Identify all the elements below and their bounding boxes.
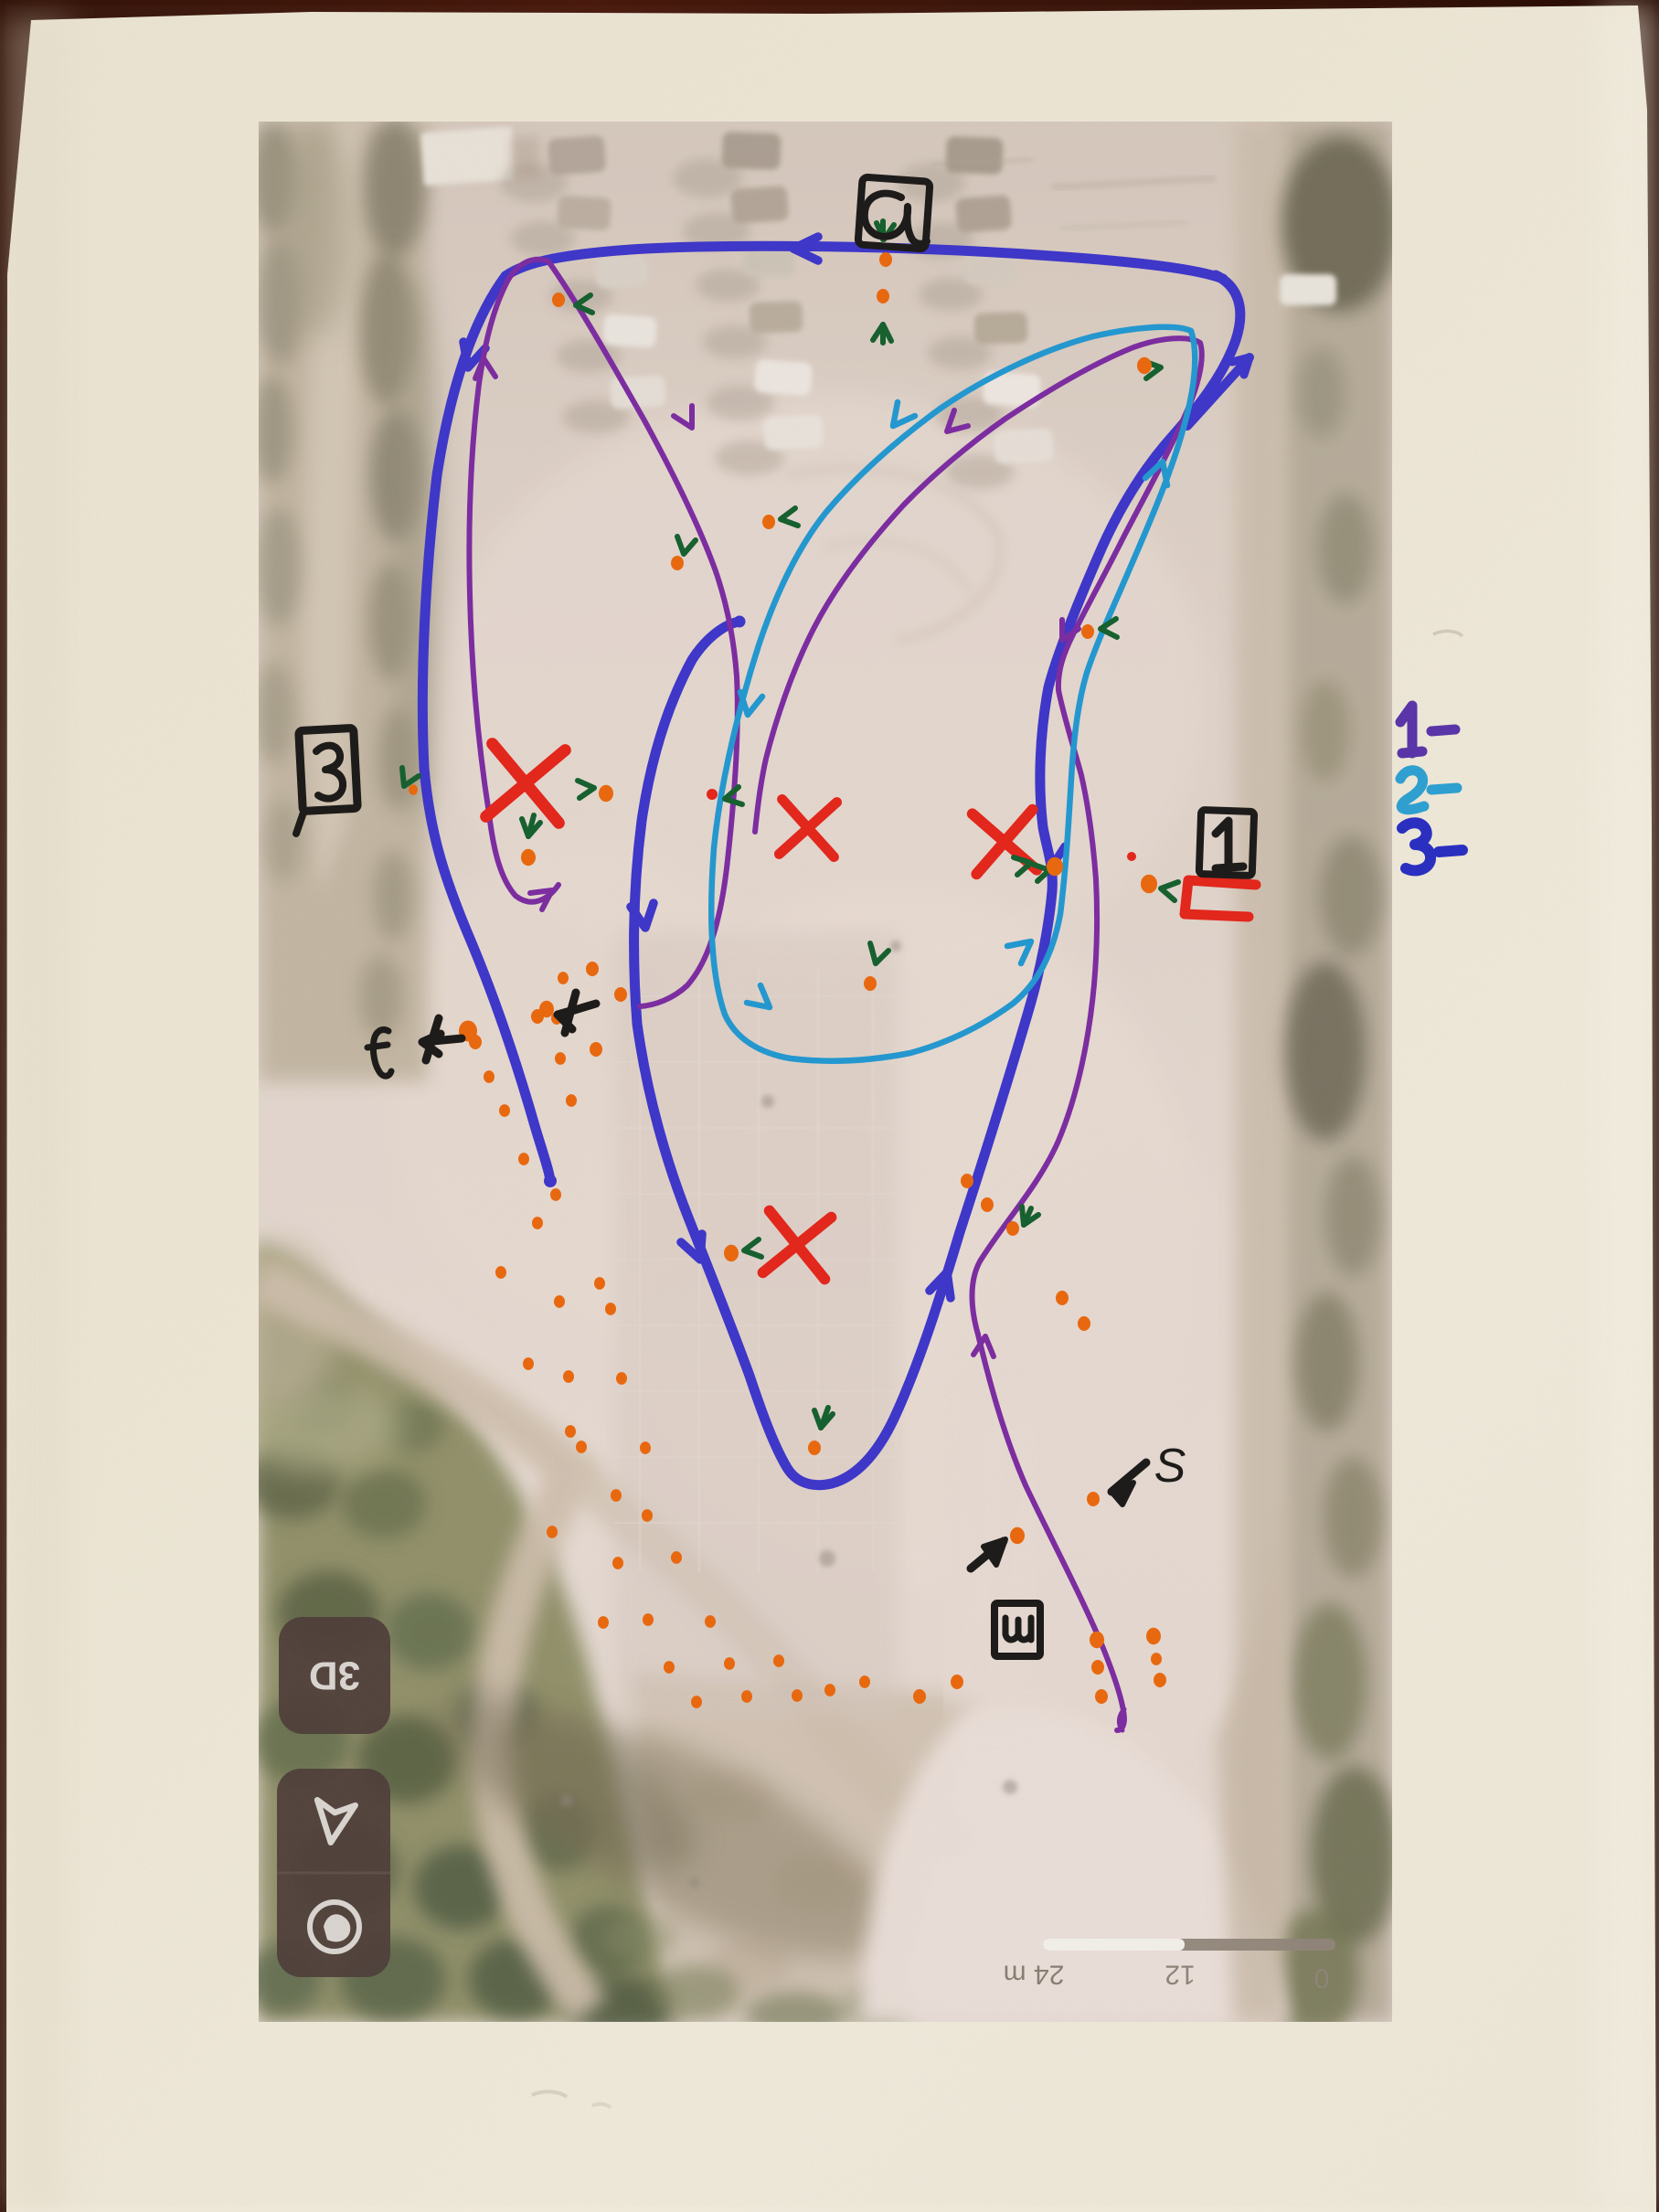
svg-text:S: S bbox=[1154, 1440, 1186, 1493]
